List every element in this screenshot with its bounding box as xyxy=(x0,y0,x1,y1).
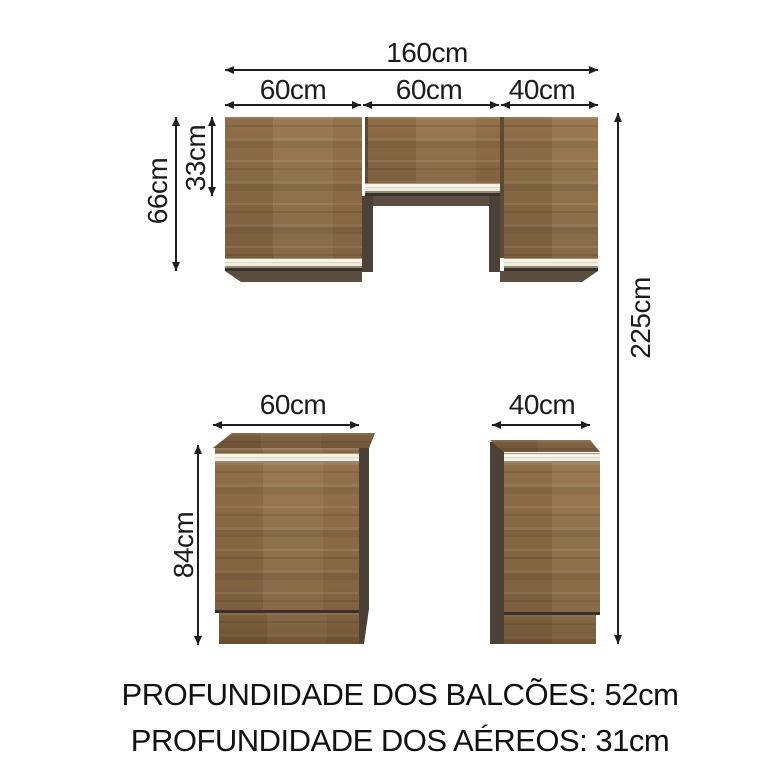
upper-cabinet-right xyxy=(500,117,598,282)
upper-cabinet-left-handle-strip xyxy=(225,258,362,268)
upper-door-height-label: 33cm xyxy=(182,125,210,191)
base-cabinet-left-door xyxy=(215,463,359,610)
upper-left-width-arrow xyxy=(225,104,361,106)
upper-cabinet-left-underside xyxy=(225,271,362,282)
upper-cabinet-right-bottom-edge xyxy=(504,268,598,271)
kitchen-dimensions-diagram: 160cm 60cm 60cm 40cm 66cm 33cm 225cm 60c… xyxy=(0,0,780,780)
total-width-label: 160cm xyxy=(386,39,468,67)
upper-height-label: 66cm xyxy=(144,158,172,224)
upper-cabinet-right-handle-strip xyxy=(504,258,598,268)
base-cabinet-right xyxy=(490,440,600,644)
base-cabinet-left-handle-strip xyxy=(215,453,359,463)
base-right-width-arrow xyxy=(492,424,590,426)
overall-height-label: 225cm xyxy=(627,277,655,359)
upper-middle-width-label: 60cm xyxy=(396,76,462,104)
upper-right-width-arrow xyxy=(501,104,598,106)
upper-door-height-arrow xyxy=(211,117,213,196)
base-cabinet-right-countertop xyxy=(490,440,600,452)
base-cabinet-right-kickboard xyxy=(504,615,596,644)
base-left-width-label: 60cm xyxy=(260,391,326,419)
overall-height-arrow xyxy=(617,113,619,644)
niche-soffit xyxy=(362,196,500,206)
upper-cabinet-right-door xyxy=(500,117,598,258)
base-right-width-label: 40cm xyxy=(509,391,575,419)
upper-cabinet-middle-door xyxy=(365,117,500,183)
base-cabinet-left-kickboard xyxy=(219,613,359,644)
niche-right-post xyxy=(489,196,500,272)
upper-cabinet-middle xyxy=(362,117,500,272)
upper-left-width-label: 60cm xyxy=(260,76,326,104)
base-cabinet-left-side-panel xyxy=(359,448,369,644)
base-height-arrow xyxy=(197,445,199,645)
base-cabinet-left-countertop xyxy=(213,433,375,448)
upper-cabinet-right-underside xyxy=(500,271,598,282)
base-height-label: 84cm xyxy=(170,512,198,578)
total-width-arrow xyxy=(225,69,598,71)
base-left-width-arrow xyxy=(213,424,359,426)
upper-height-arrow xyxy=(175,117,177,271)
niche-left-post xyxy=(362,196,373,272)
upper-middle-width-arrow xyxy=(363,104,499,106)
depth-note-balcoes: PROFUNDIDADE DOS BALCÕES: 52cm xyxy=(122,672,679,718)
base-cabinet-left xyxy=(213,433,376,644)
upper-cabinet-middle-handle-strip xyxy=(365,183,500,193)
upper-cabinet-left-door xyxy=(225,117,362,258)
base-cabinet-right-door xyxy=(504,463,600,612)
base-cabinet-right-handle-strip xyxy=(504,453,600,463)
upper-right-width-label: 40cm xyxy=(509,76,575,104)
upper-cabinet-left-bottom-edge xyxy=(225,268,362,271)
upper-cabinet-left xyxy=(225,117,362,282)
depth-note-aereos: PROFUNDIDADE DOS AÉREOS: 31cm xyxy=(122,718,679,764)
depth-notes: PROFUNDIDADE DOS BALCÕES: 52cm PROFUNDID… xyxy=(122,672,679,764)
base-cabinet-right-side-panel xyxy=(490,442,504,644)
